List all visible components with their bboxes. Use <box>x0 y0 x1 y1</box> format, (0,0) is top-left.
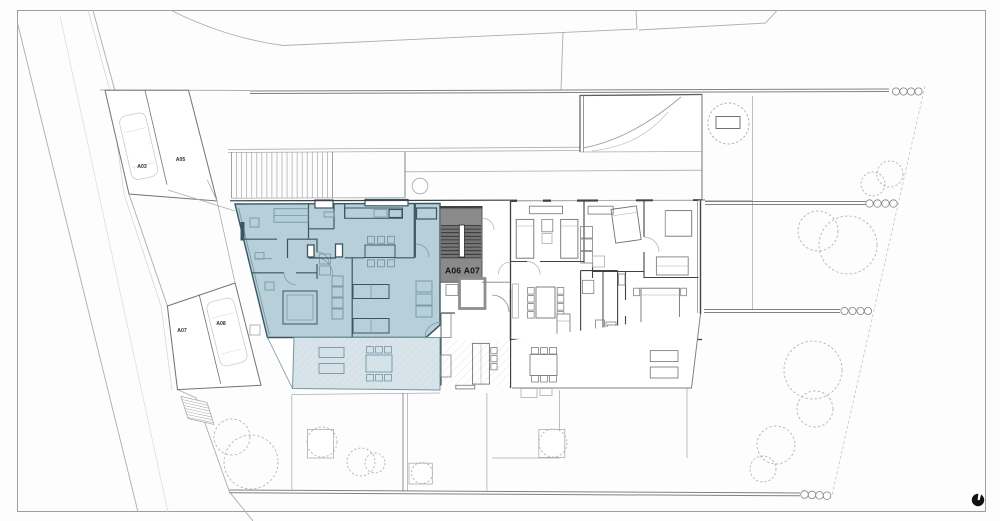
svg-text:A03: A03 <box>137 164 147 170</box>
svg-text:A08: A08 <box>216 321 226 327</box>
svg-text:A06 A07: A06 A07 <box>445 266 480 276</box>
svg-text:A05: A05 <box>176 157 186 163</box>
svg-text:A07: A07 <box>177 328 187 334</box>
